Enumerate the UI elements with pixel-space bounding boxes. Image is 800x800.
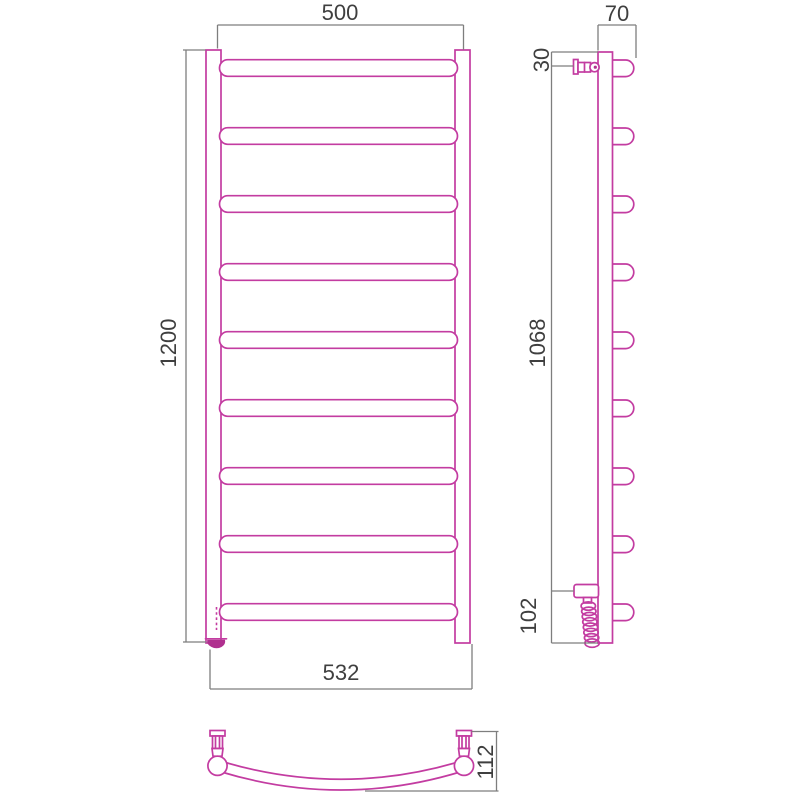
front-rungs xyxy=(220,60,458,621)
left-post-section-circle xyxy=(208,756,227,775)
dimension-label-bottom-arc-depth: 112 xyxy=(475,744,497,779)
side-post xyxy=(598,52,613,643)
bracket-knob-dot xyxy=(594,66,597,69)
mount-stem-inner xyxy=(462,736,466,749)
dimension-label-side-depth: 70 xyxy=(605,3,629,25)
front-rung xyxy=(220,332,458,349)
dim-chain-30-1068-102 xyxy=(552,52,599,643)
side-rung xyxy=(611,264,634,281)
front-dimensions xyxy=(183,25,472,689)
dimension-label-side-bottom-offset: 102 xyxy=(518,598,540,635)
side-rung xyxy=(611,128,634,145)
mount-stem-inner xyxy=(216,736,220,749)
dimension-label-side-top-offset: 30 xyxy=(531,48,553,72)
power-cord-coil xyxy=(581,602,599,648)
side-rung xyxy=(611,196,634,213)
bottom-right-mount xyxy=(457,731,472,757)
front-rung xyxy=(220,128,458,145)
terminal-box xyxy=(574,585,599,598)
side-rungs xyxy=(611,60,634,621)
side-view xyxy=(574,52,634,647)
dim-line-500 xyxy=(218,25,464,50)
bottom-view xyxy=(208,731,474,791)
dim-line-1200 xyxy=(183,50,207,642)
side-rung xyxy=(611,536,634,553)
arc-tube-outer xyxy=(222,772,461,790)
front-rung xyxy=(220,264,458,281)
dimension-label-side-bracket-span: 1068 xyxy=(527,319,549,368)
top-wall-bracket xyxy=(574,60,600,75)
front-view xyxy=(206,50,471,648)
bottom-terminal-box xyxy=(574,585,599,604)
front-left-post xyxy=(206,50,221,643)
bottom-left-mount xyxy=(210,731,225,757)
side-rung xyxy=(611,332,634,349)
front-rung xyxy=(220,536,458,553)
right-post-section-circle xyxy=(454,756,473,775)
front-rung xyxy=(220,60,458,77)
electric-foot-cap xyxy=(207,640,225,648)
drawing-canvas xyxy=(0,0,800,800)
mount-collar xyxy=(212,749,223,757)
dimension-label-front-bottom-width: 532 xyxy=(323,662,360,684)
side-rung xyxy=(611,468,634,485)
mount-collar xyxy=(459,749,470,757)
side-rung xyxy=(611,60,634,77)
front-rung xyxy=(220,604,458,621)
front-rung xyxy=(220,468,458,485)
side-rung xyxy=(611,400,634,417)
dimension-label-front-height: 1200 xyxy=(158,319,180,368)
technical-drawing-page: 500 1200 532 70 30 1068 102 112 xyxy=(0,0,800,800)
arc-tube-inner xyxy=(226,763,457,780)
side-rung xyxy=(611,604,634,621)
front-rung xyxy=(220,400,458,417)
front-rung xyxy=(220,196,458,213)
dimension-label-front-top-width: 500 xyxy=(322,2,359,24)
